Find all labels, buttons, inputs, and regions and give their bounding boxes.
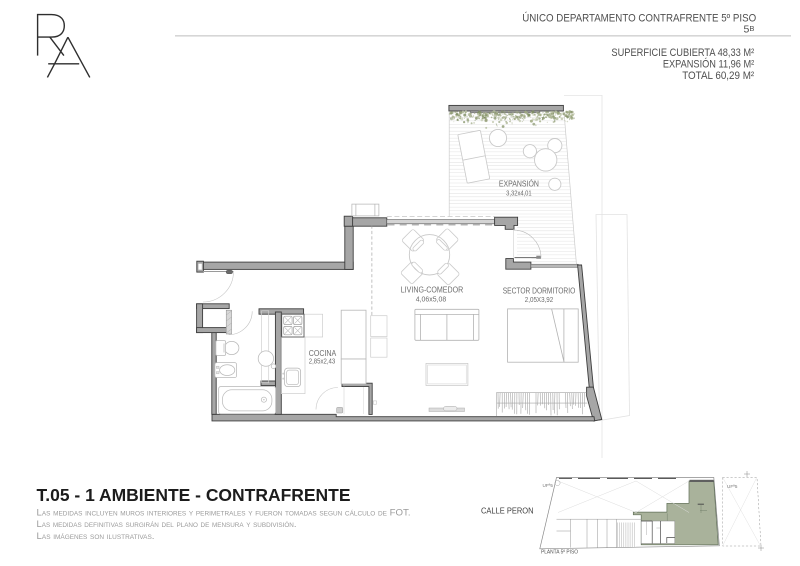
- svg-text:UFª5: UFª5: [543, 483, 554, 488]
- svg-text:Las imágenes son ilustrativas.: Las imágenes son ilustrativas.: [37, 531, 155, 541]
- svg-text:EXPANSIÓN 11,96 M²: EXPANSIÓN 11,96 M²: [663, 57, 755, 70]
- svg-text:PLANTA 5º PISO: PLANTA 5º PISO: [541, 550, 578, 556]
- svg-text:2,85x2,43: 2,85x2,43: [309, 357, 336, 366]
- svg-text:4,06x5,08: 4,06x5,08: [416, 294, 447, 303]
- svg-text:LIVING-COMEDOR: LIVING-COMEDOR: [401, 284, 464, 294]
- svg-text:2,05X3,92: 2,05X3,92: [525, 295, 554, 304]
- svg-text:3,32x4,01: 3,32x4,01: [506, 188, 532, 197]
- svg-text:CALLE PERON: CALLE PERON: [481, 507, 534, 516]
- svg-text:SUPERFICIE CUBIERTA 48,33 M²: SUPERFICIE CUBIERTA 48,33 M²: [611, 47, 754, 59]
- svg-text:UFª5: UFª5: [727, 484, 738, 489]
- svg-text:EXPANSIÓN: EXPANSIÓN: [499, 178, 539, 188]
- svg-text:TOTAL 60,29 M²: TOTAL 60,29 M²: [682, 70, 754, 82]
- svg-text:T.05 - 1 AMBIENTE - CONTRAFREN: T.05 - 1 AMBIENTE - CONTRAFRENTE: [37, 485, 351, 505]
- svg-text:ÚNICO DEPARTAMENTO CONTRAFRENT: ÚNICO DEPARTAMENTO CONTRAFRENTE 5º PISO: [522, 12, 756, 25]
- svg-text:Las medidas incluyen muros int: Las medidas incluyen muros interiores y …: [37, 508, 411, 518]
- svg-text:Las medidas definitivas surgir: Las medidas definitivas surgirán del pla…: [37, 519, 297, 529]
